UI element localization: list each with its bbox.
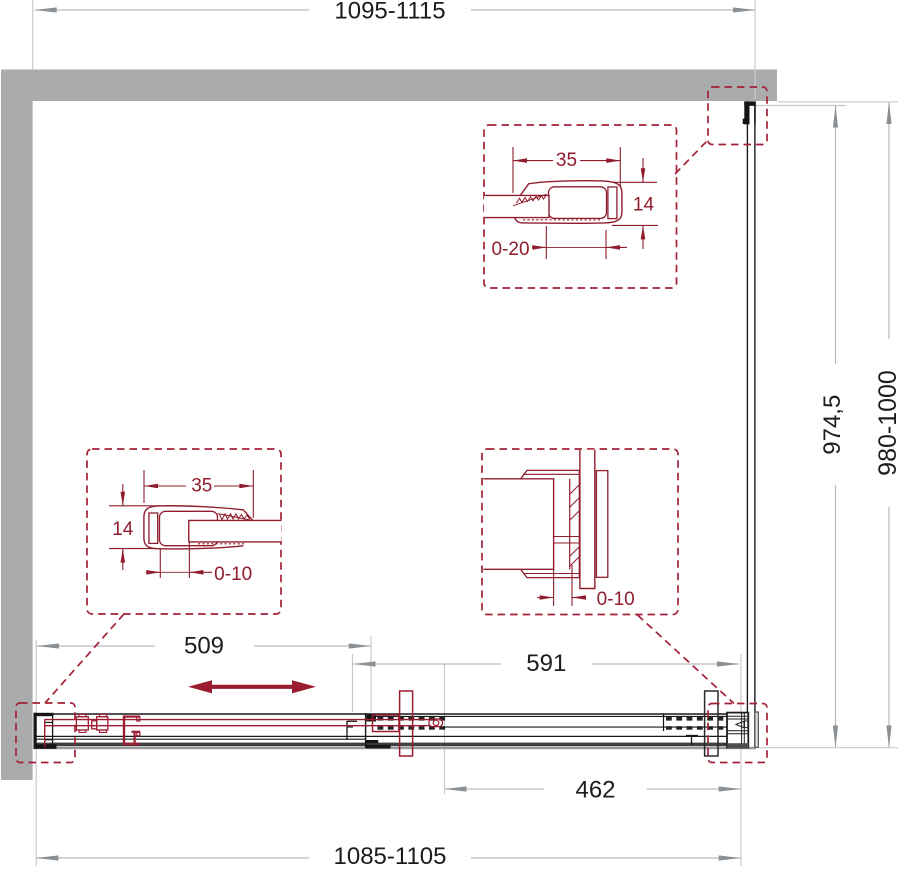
svg-text:0-10: 0-10 [597,589,635,610]
svg-text:0-20: 0-20 [491,239,529,260]
svg-text:1085-1105: 1085-1105 [334,843,447,869]
svg-text:35: 35 [556,150,577,171]
svg-text:14: 14 [112,519,134,540]
svg-text:35: 35 [191,476,212,497]
svg-text:980-1000: 980-1000 [874,370,900,476]
svg-text:462: 462 [575,777,615,804]
svg-text:974,5: 974,5 [819,395,846,455]
svg-text:14: 14 [633,194,655,215]
svg-text:0-10: 0-10 [214,564,252,585]
svg-text:509: 509 [184,632,224,659]
svg-text:1095-1115: 1095-1115 [334,0,445,24]
svg-text:591: 591 [526,650,566,677]
